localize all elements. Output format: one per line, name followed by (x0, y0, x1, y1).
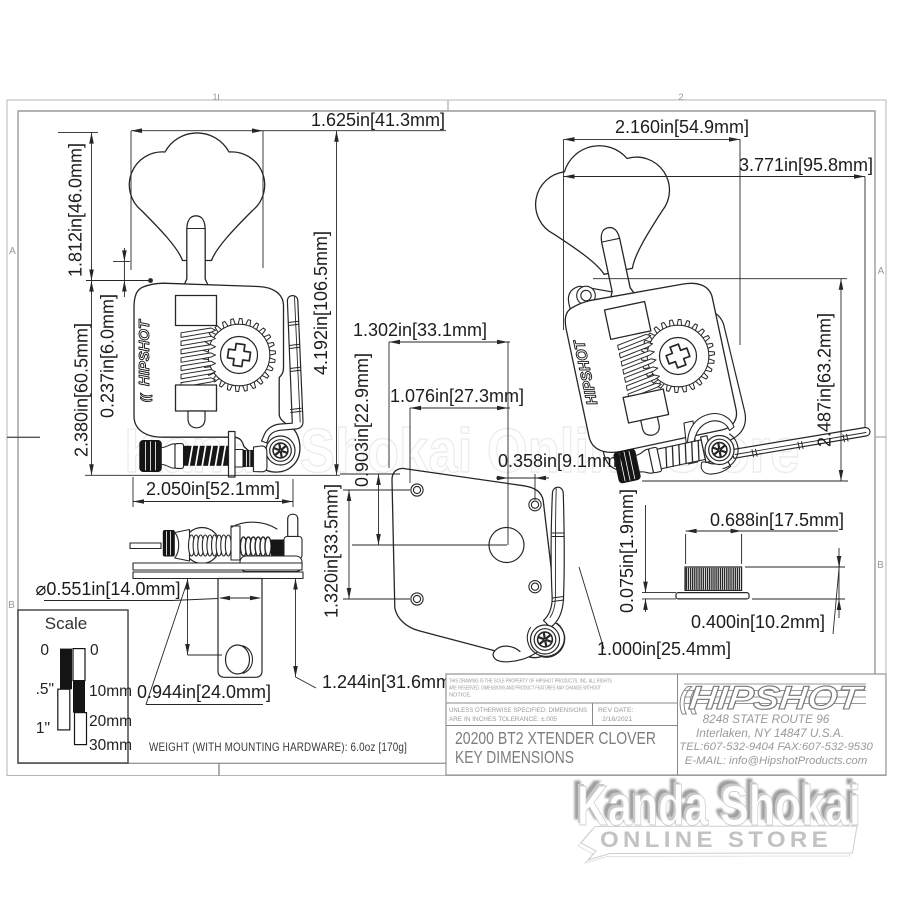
svg-text:10mm: 10mm (89, 683, 132, 700)
svg-text:2.487in[63.2mm]: 2.487in[63.2mm] (815, 313, 835, 447)
svg-text:.5": .5" (36, 681, 54, 698)
svg-text:1: 1 (212, 92, 217, 103)
svg-text:2/16/2021: 2/16/2021 (602, 716, 632, 723)
svg-text:1.302in[33.1mm]: 1.302in[33.1mm] (353, 320, 487, 340)
svg-text:ONLINE STORE: ONLINE STORE (600, 827, 832, 852)
svg-text:E-MAIL: info@HipshotProducts.c: E-MAIL: info@HipshotProducts.com (685, 755, 868, 767)
svg-text:20200 BT2 XTENDER CLOVER: 20200 BT2 XTENDER CLOVER (455, 728, 656, 748)
svg-text:3.771in[95.8mm]: 3.771in[95.8mm] (739, 155, 873, 175)
svg-text:0.358in[9.1mm]: 0.358in[9.1mm] (498, 451, 622, 471)
svg-text:B: B (877, 560, 884, 571)
svg-text:WEIGHT (WITH MOUNTING HARDWARE: WEIGHT (WITH MOUNTING HARDWARE): 6.0oz [… (149, 741, 407, 754)
svg-text:B: B (8, 600, 15, 611)
svg-text:30mm: 30mm (89, 737, 132, 754)
svg-text:2.380in[60.5mm]: 2.380in[60.5mm] (72, 323, 92, 457)
svg-text:0.688in[17.5mm]: 0.688in[17.5mm] (710, 510, 844, 530)
svg-text:1.076in[27.3mm]: 1.076in[27.3mm] (390, 386, 524, 406)
svg-text:20mm: 20mm (89, 713, 132, 730)
svg-text:0.400in[10.2mm]: 0.400in[10.2mm] (691, 612, 825, 632)
svg-text:NOTICE.: NOTICE. (449, 693, 472, 699)
svg-text:0: 0 (90, 642, 99, 659)
svg-text:REV DATE:: REV DATE: (598, 707, 633, 714)
svg-text:1.812in[46.0mm]: 1.812in[46.0mm] (66, 143, 86, 277)
svg-text:⌀0.551in[14.0mm]: ⌀0.551in[14.0mm] (36, 579, 181, 599)
svg-text:8248 STATE ROUTE 96: 8248 STATE ROUTE 96 (703, 712, 830, 726)
svg-text:1.000in[25.4mm]: 1.000in[25.4mm] (597, 639, 731, 659)
svg-text:ARE IN INCHES TOLERANCE: ±.005: ARE IN INCHES TOLERANCE: ±.005 (449, 716, 557, 723)
svg-text:THIS DRAWING IS THE SOLE PROPE: THIS DRAWING IS THE SOLE PROPERTY OF HIP… (449, 679, 612, 685)
svg-text:1": 1" (36, 720, 50, 737)
svg-text:ARE RESERVED. DIMENSIONS AND P: ARE RESERVED. DIMENSIONS AND PRODUCT FEA… (449, 686, 601, 692)
svg-text:1.320in[33.5mm]: 1.320in[33.5mm] (322, 484, 342, 618)
svg-text:2.160in[54.9mm]: 2.160in[54.9mm] (615, 117, 749, 137)
svg-text:0: 0 (40, 642, 49, 659)
svg-text:A: A (9, 246, 16, 257)
svg-text:2: 2 (678, 92, 683, 103)
svg-text:0.944in[24.0mm]: 0.944in[24.0mm] (137, 682, 271, 702)
svg-text:2.050in[52.1mm]: 2.050in[52.1mm] (146, 479, 280, 499)
svg-text:KEY DIMENSIONS: KEY DIMENSIONS (455, 747, 574, 767)
svg-text:TEL:607-532-9404 FAX:607-532-9: TEL:607-532-9404 FAX:607-532-9530 (679, 741, 873, 753)
svg-text:0.903in[22.9mm]: 0.903in[22.9mm] (352, 353, 372, 487)
svg-text:1.625in[41.3mm]: 1.625in[41.3mm] (311, 110, 445, 130)
svg-text:0.075in[1.9mm]: 0.075in[1.9mm] (617, 489, 637, 613)
svg-text:Scale: Scale (45, 614, 88, 633)
svg-text:UNLESS OTHERWISE SPECIFIED: DI: UNLESS OTHERWISE SPECIFIED: DIMENSIONS (449, 707, 587, 714)
svg-text:A: A (878, 266, 885, 277)
svg-text:4.192in[106.5mm]: 4.192in[106.5mm] (311, 231, 331, 375)
svg-text:HIPSHOT: HIPSHOT (136, 318, 153, 386)
svg-text:0.237in[6.0mm]: 0.237in[6.0mm] (98, 294, 118, 418)
svg-text:1.244in[31.6mm]: 1.244in[31.6mm] (322, 672, 456, 692)
svg-text:Interlaken, NY 14847 U.S.A.: Interlaken, NY 14847 U.S.A. (696, 726, 844, 740)
